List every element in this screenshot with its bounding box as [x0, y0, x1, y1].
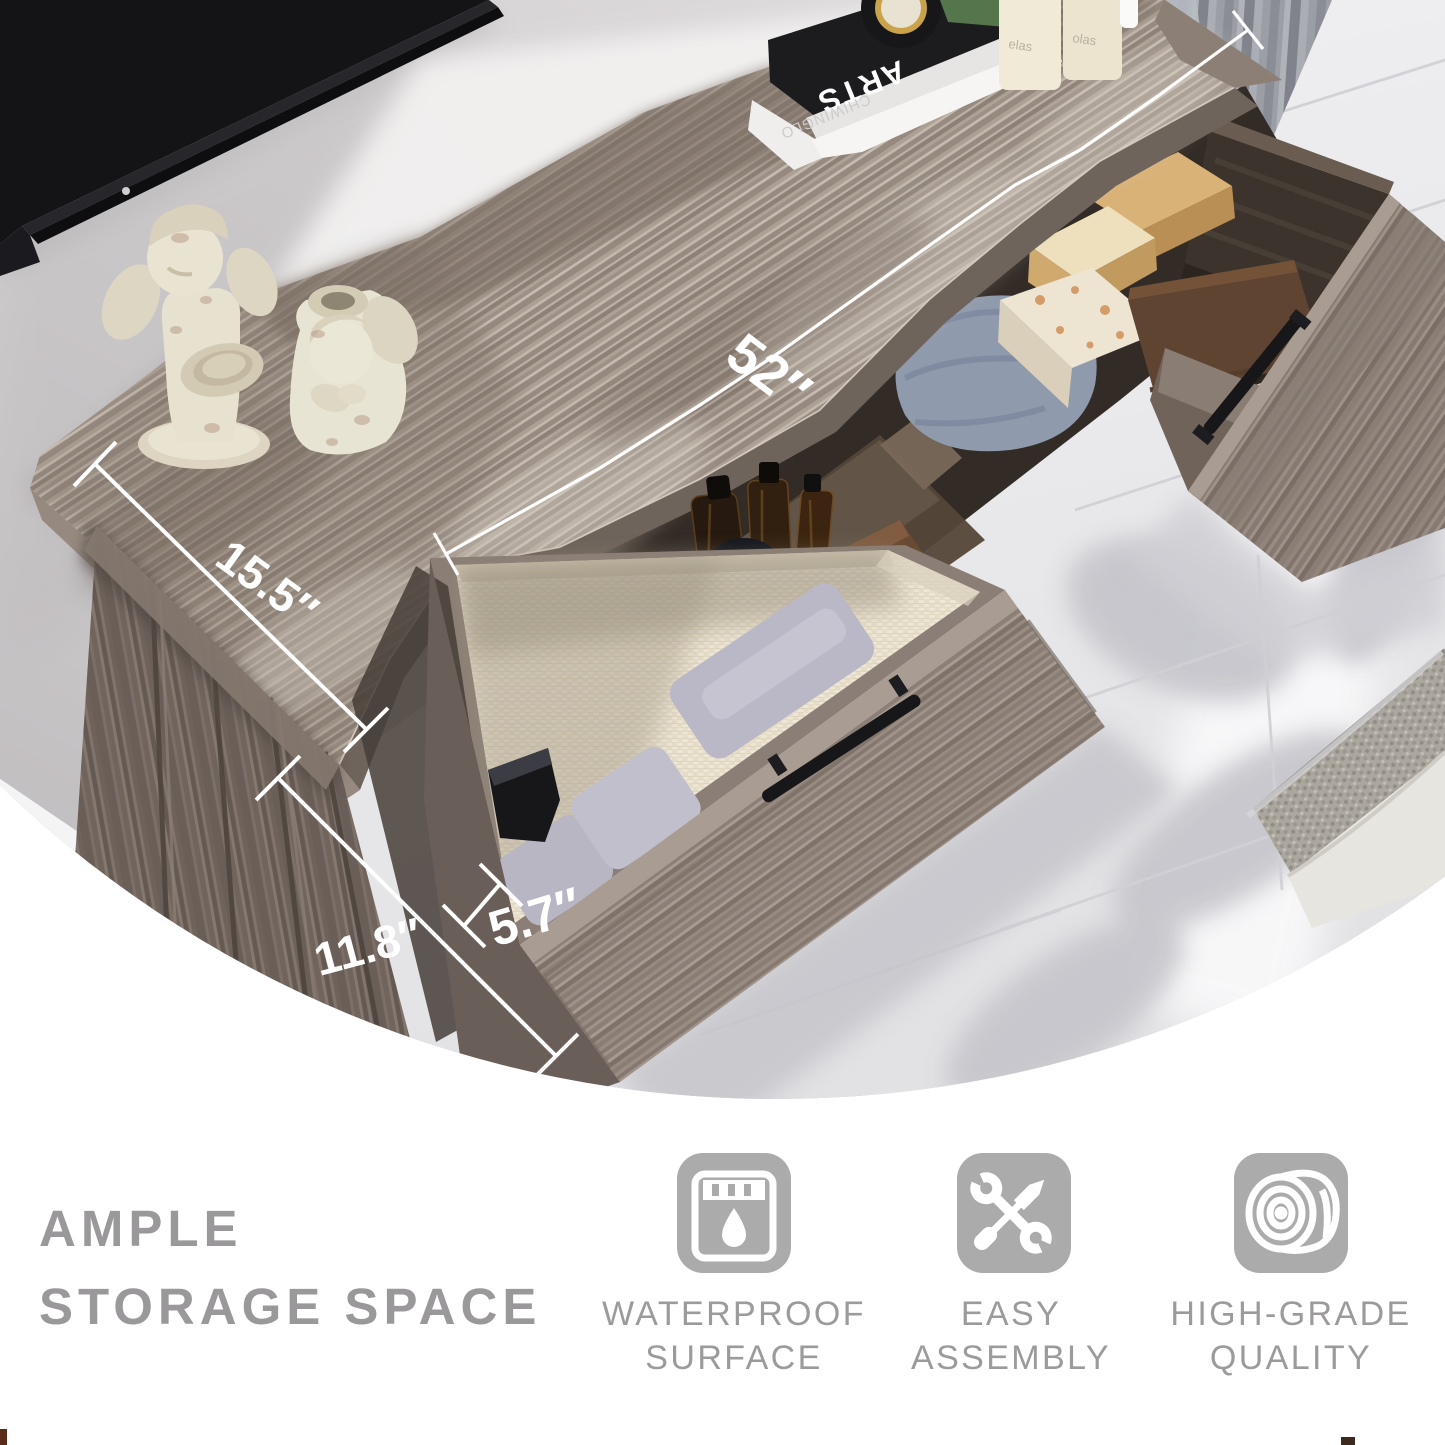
svg-text:QUALITY: QUALITY: [1210, 1339, 1372, 1377]
svg-text:ASSEMBLY: ASSEMBLY: [911, 1339, 1111, 1377]
svg-text:STORAGE SPACE: STORAGE SPACE: [39, 1278, 541, 1335]
svg-text:SURFACE: SURFACE: [645, 1339, 822, 1377]
svg-text:WATERPROOF: WATERPROOF: [602, 1295, 866, 1333]
svg-text:EASY: EASY: [961, 1295, 1061, 1333]
svg-text:HIGH-GRADE: HIGH-GRADE: [1170, 1295, 1411, 1333]
svg-text:AMPLE: AMPLE: [39, 1200, 243, 1257]
